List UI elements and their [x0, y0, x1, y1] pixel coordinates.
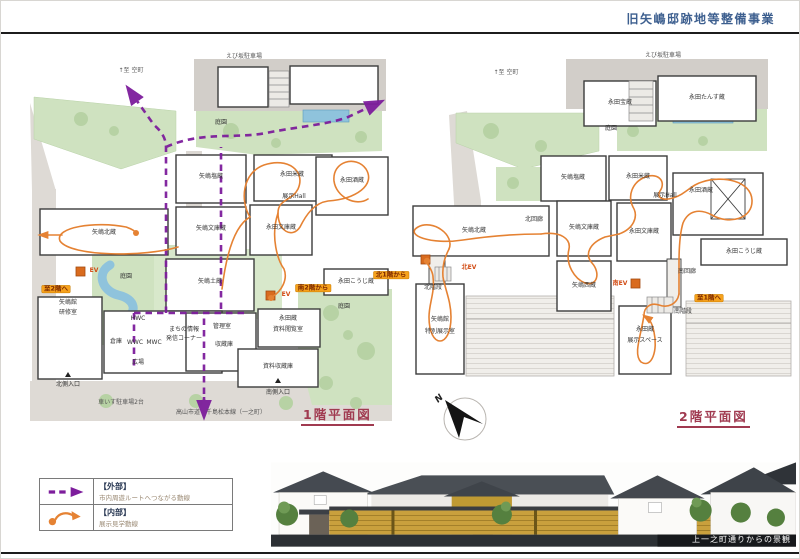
room-label-nagata-tansukura: 永田たんす蔵	[689, 95, 725, 101]
floor-plan-2: ↑至 空町 えび坂駐車場 永田宝蔵 永田たんす蔵 庭園 矢嶋塩蔵 永田米蔵 展示…	[371, 51, 796, 423]
legend-desc-internal: 展示見学動線	[99, 518, 138, 528]
legend-row-external: 【外部】 市内周遊ルートへつながる動線	[40, 479, 232, 504]
room-label-exhibit-space: 展示スペース	[627, 338, 662, 344]
room-label-material-storage: 資料収蔵庫	[263, 364, 293, 370]
perspective-caption: 上一之町通りからの景観	[692, 534, 791, 545]
north-entrance-label: 北側入口	[56, 382, 80, 388]
route-note-to-2f: 至2階へ	[42, 286, 70, 293]
room-label-nagata-kura: 永田蔵	[636, 327, 654, 333]
room-label-mwc: MWC	[146, 340, 161, 346]
room-label-admin: 管理室	[213, 324, 231, 330]
direction-label-soramachi: ↑至 空町	[494, 70, 519, 76]
stairs-label-north: 北階段	[424, 285, 442, 291]
corridor-label-north: 北回廊	[525, 217, 543, 223]
footer-rule	[1, 552, 799, 554]
road-name-label: 高山市道 千島松本線（一之町）	[176, 410, 266, 416]
street-perspective: 上一之町通りからの景観	[271, 462, 796, 547]
room-label-info-corner-2: 発信コーナー	[166, 336, 202, 342]
garden-label-right: 庭園	[338, 304, 350, 310]
garden-label: 庭園	[605, 126, 617, 132]
room-label-nagata-sakagura: 永田酒蔵	[340, 178, 364, 184]
room-label-hwc: HWC	[131, 316, 146, 322]
route-legend: 【外部】 市内周遊ルートへつながる動線 【内部】 展示見学動線	[39, 478, 233, 531]
stairs-label-south: 南階段	[674, 309, 692, 315]
direction-label-soramachi: ↑至 空町	[119, 68, 144, 74]
plan1-stairs	[269, 71, 289, 107]
room-label-yajima-bunkokura: 矢嶋文庫蔵	[196, 226, 226, 232]
room-label-nagata-kura: 永田蔵	[279, 316, 297, 322]
room-label-storage: 倉庫	[110, 339, 122, 345]
garden-label-pond: 庭園	[120, 274, 132, 280]
legend-category-external: 【外部】	[99, 481, 190, 492]
room-label-yajima-kitakura: 矢嶋北蔵	[462, 228, 486, 234]
room-label-exhibit-hall: 展示Hall	[282, 194, 306, 200]
room-label-nagata-komekura: 永田米蔵	[280, 172, 304, 178]
room-label-yajima-kitakura: 矢嶋北蔵	[92, 230, 116, 236]
plaza-label: 広場	[132, 360, 144, 366]
south-entrance-label: 南側入口	[266, 390, 290, 396]
garden-label-top: 庭園	[215, 120, 227, 126]
north-compass: N	[429, 391, 499, 445]
room-label-yajima-shiokura: 矢嶋塩蔵	[561, 175, 585, 181]
floor-plan-1: ↑至 空町 えび坂駐車場 庭園 矢嶋塩蔵 永田米蔵 永田酒蔵 展示Hall 矢嶋…	[26, 51, 396, 423]
header-rule	[1, 32, 799, 34]
room-label-training-room: 研修室	[59, 310, 77, 316]
compass-north-label: N	[433, 392, 446, 405]
elevator-label-south: EV	[282, 292, 291, 298]
room-label-nagata-bunkokura: 永田文庫蔵	[266, 225, 296, 231]
wheelchair-parking-label: 車いす駐車場2台	[98, 400, 144, 406]
room-label-yajima-bunkokura: 矢嶋文庫蔵	[569, 225, 599, 231]
page-title: 旧矢嶋邸跡地等整備事業	[626, 10, 775, 27]
legend-row-internal: 【内部】 展示見学動線	[40, 504, 232, 530]
room-label-yajima-kan: 矢嶋館	[59, 300, 77, 306]
room-label-yajima-shiokura: 矢嶋塩蔵	[199, 174, 223, 180]
room-label-archive: 収蔵庫	[215, 342, 233, 348]
room-label-nagata-kojikura: 永田こうじ蔵	[338, 279, 374, 285]
elevator-label-south: 南EV	[613, 281, 628, 287]
room-label-yajima-dozo: 矢嶋土蔵	[198, 279, 222, 285]
room-label-nagata-komekura: 永田米蔵	[626, 174, 650, 180]
route-note-from-1f-north: 北1階から	[374, 272, 409, 279]
external-route-icon	[40, 479, 94, 504]
elevator-label-north: EV	[90, 268, 99, 274]
room-label-nagata-kojikura: 永田こうじ蔵	[726, 249, 762, 255]
room-label-special-exhibit: 特別展示室	[425, 329, 455, 335]
room-label-nagata-bunkokura: 永田文庫蔵	[629, 229, 659, 235]
room-label-nagata-sakagura: 永田酒蔵	[689, 188, 713, 194]
route-note-from-2f-south: 南2階から	[296, 285, 331, 292]
floor-plan-2-drawing	[371, 51, 796, 423]
plan2-title: 2階平面図	[677, 406, 750, 428]
corridor-label-south: 南回廊	[678, 269, 696, 275]
route-note-to-1f: 至1階へ	[695, 295, 723, 302]
legend-category-internal: 【内部】	[99, 507, 138, 518]
floor-plan-1-drawing	[26, 51, 396, 423]
room-label-wwc: WWC	[127, 340, 143, 346]
elevator-label-north: 北EV	[462, 265, 477, 271]
room-label-reading-room: 資料閲覧室	[273, 327, 303, 333]
parking-label: えび坂駐車場	[645, 53, 681, 59]
plan-sheet: 旧矢嶋邸跡地等整備事業	[0, 0, 800, 559]
room-label-yajima-kan: 矢嶋館	[431, 317, 449, 323]
room-label-info-corner-1: まちの情報	[169, 327, 199, 333]
room-label-nagata-takarakura: 永田宝蔵	[608, 100, 632, 106]
room-label-yajima-nishikura: 矢嶋西蔵	[572, 283, 596, 289]
plan1-title: 1階平面図	[301, 404, 374, 426]
north-needle-icon	[445, 400, 483, 438]
parking-label: えび坂駐車場	[226, 54, 262, 60]
internal-route-icon	[40, 505, 94, 530]
room-label-exhibit-hall: 展示Hall	[653, 193, 677, 199]
legend-desc-external: 市内周遊ルートへつながる動線	[99, 492, 190, 502]
